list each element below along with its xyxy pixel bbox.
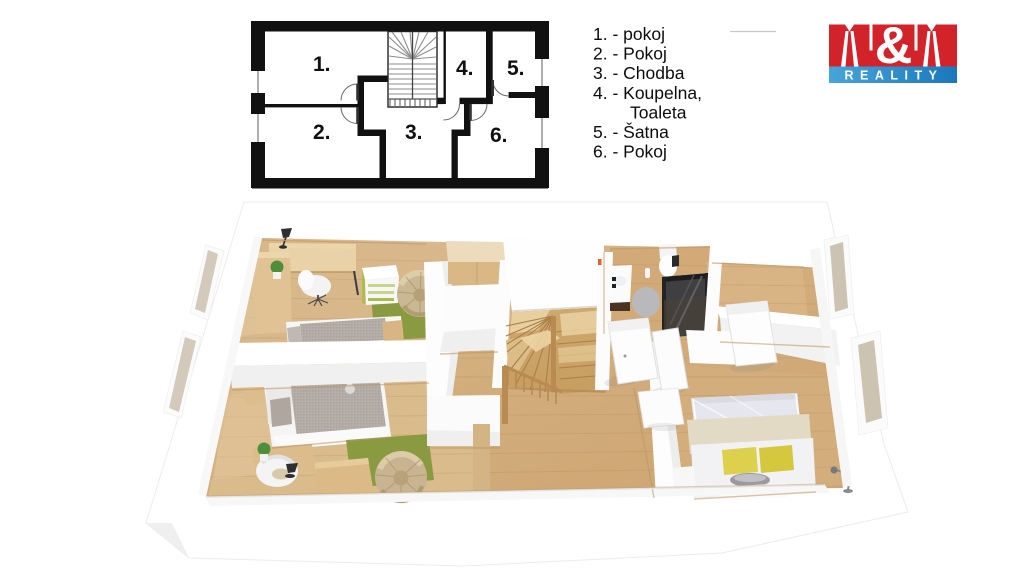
- svg-text:4.: 4.: [456, 57, 474, 80]
- svg-text:Toaleta: Toaleta: [630, 102, 687, 122]
- svg-text:1.: 1.: [313, 53, 331, 76]
- svg-text:5.: 5.: [507, 57, 525, 80]
- svg-text:6. - Pokoj: 6. - Pokoj: [593, 142, 667, 162]
- svg-text:5. - Šatna: 5. - Šatna: [593, 121, 669, 142]
- svg-text:REALITY: REALITY: [845, 69, 944, 83]
- svg-text:3.: 3.: [405, 121, 423, 144]
- svg-text:1. - pokoj: 1. - pokoj: [593, 24, 665, 44]
- svg-text:4. - Koupelna,: 4. - Koupelna,: [593, 83, 702, 103]
- svg-text:6.: 6.: [490, 124, 508, 147]
- svg-text:2. - Pokoj: 2. - Pokoj: [593, 44, 667, 64]
- svg-text:&: &: [875, 17, 913, 75]
- svg-text:3. - Chodba: 3. - Chodba: [593, 63, 685, 83]
- svg-text:2.: 2.: [313, 121, 331, 144]
